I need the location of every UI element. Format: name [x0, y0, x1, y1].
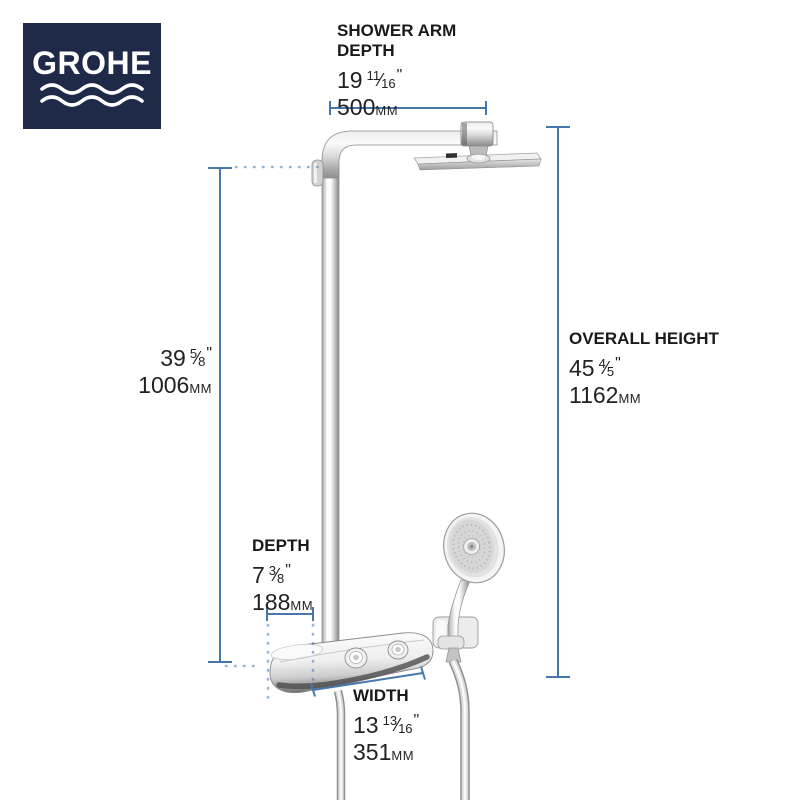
hand-shower-hose: [453, 661, 465, 800]
inch-mark: ": [285, 562, 291, 579]
mm-unit: mm: [189, 381, 212, 396]
dimension-depth: DEPTH 73⁄8" 188mm: [252, 536, 313, 617]
inch-mark: ": [206, 345, 212, 362]
mm-unit: mm: [375, 103, 398, 118]
riser-pipe: [322, 168, 339, 652]
dimension-width: WIDTH 1313⁄16" 351mm: [353, 686, 419, 767]
valve-outlet-hose: [338, 691, 341, 800]
dimension-shower-arm-depth: SHOWER ARM DEPTH 1911⁄16" 500mm: [337, 21, 456, 122]
dimension-label: DEPTH: [337, 41, 456, 61]
dimension-riser-height: 395⁄8" 1006mm: [62, 342, 212, 400]
wall-bracket: [312, 160, 323, 186]
dimension-overall-height: OVERALL HEIGHT 454⁄5" 1162mm: [569, 329, 719, 410]
inch-mark: ": [615, 355, 621, 372]
dimension-label: OVERALL HEIGHT: [569, 329, 719, 349]
inch-mark: ": [414, 712, 420, 729]
inches-fraction: 4⁄5: [599, 364, 614, 379]
dimension-inches: 1313⁄16": [353, 709, 419, 740]
inches-fraction: 13⁄16: [383, 721, 413, 736]
fraction-denominator: 16: [381, 76, 395, 91]
product-dimension-diagram: GROHE SHOWER ARM DEPTH 1911⁄16" 500mm 39…: [0, 0, 800, 800]
inches-fraction: 11⁄16: [367, 76, 396, 91]
fraction-numerator: 13: [383, 713, 397, 728]
valve-knob-left: [345, 648, 367, 668]
dimension-label: WIDTH: [353, 686, 419, 706]
mm-value: 1162: [569, 382, 618, 408]
fraction-denominator: 5: [607, 364, 614, 379]
dimension-label: SHOWER ARM: [337, 21, 456, 41]
mm-value: 1006: [138, 372, 189, 398]
inches-whole: 39: [160, 345, 186, 371]
dimension-millimeters: 1006mm: [62, 374, 212, 400]
fraction-denominator: 16: [398, 721, 412, 736]
shower-head-logo-chip: [446, 153, 457, 158]
overhead-shower-head: [414, 153, 541, 170]
dimension-millimeters: 1162mm: [569, 384, 719, 410]
inches-fraction: 5⁄8: [190, 354, 205, 369]
mm-unit: mm: [618, 391, 641, 406]
dimension-inches: 395⁄8": [62, 342, 212, 373]
grohe-wordmark: GROHE: [32, 48, 152, 78]
mm-value: 188: [252, 589, 290, 615]
mm-value: 500: [337, 94, 375, 120]
valve-knob-right: [388, 641, 408, 659]
dimension-inches: 73⁄8": [252, 559, 313, 590]
dimension-label: DEPTH: [252, 536, 313, 556]
inch-mark: ": [397, 67, 403, 84]
inches-whole: 45: [569, 355, 595, 381]
inches-whole: 7: [252, 562, 265, 588]
dimension-inches: 1911⁄16": [337, 64, 456, 95]
grohe-wave-icon: [40, 83, 144, 107]
mm-unit: mm: [391, 748, 414, 763]
mm-unit: mm: [290, 598, 313, 613]
dimension-millimeters: 351mm: [353, 741, 419, 767]
inches-fraction: 3⁄8: [269, 571, 284, 586]
fraction-denominator: 8: [198, 354, 205, 369]
dimension-inches: 454⁄5": [569, 352, 719, 383]
grohe-logo: GROHE: [23, 23, 161, 129]
mm-value: 351: [353, 739, 391, 765]
inches-whole: 19: [337, 67, 363, 93]
inches-whole: 13: [353, 712, 379, 738]
dimension-millimeters: 188mm: [252, 591, 313, 617]
dim-line-overall-height: [546, 127, 570, 677]
fraction-denominator: 8: [277, 571, 284, 586]
dim-line-riser-height: [208, 168, 232, 662]
dimension-millimeters: 500mm: [337, 96, 456, 122]
